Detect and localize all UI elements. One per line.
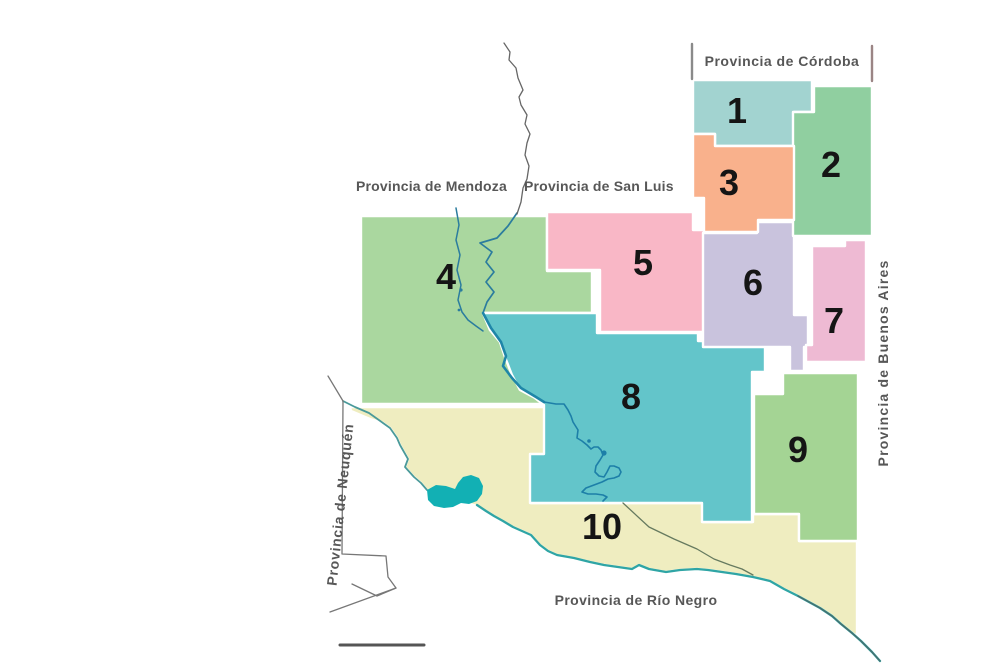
svg-text:6: 6	[743, 262, 763, 303]
svg-text:10: 10	[582, 506, 622, 547]
svg-text:5: 5	[633, 242, 653, 283]
svg-text:1: 1	[727, 90, 747, 131]
svg-text:Provincia de Mendoza: Provincia de Mendoza	[356, 178, 507, 194]
svg-text:Provincia de Río Negro: Provincia de Río Negro	[555, 592, 718, 608]
svg-text:4: 4	[436, 256, 456, 297]
svg-text:Provincia de Córdoba: Provincia de Córdoba	[705, 53, 860, 69]
svg-text:Provincia de Buenos Aires: Provincia de Buenos Aires	[875, 260, 891, 467]
svg-text:3: 3	[719, 162, 739, 203]
svg-text:9: 9	[788, 429, 808, 470]
svg-text:Provincia de San Luis: Provincia de San Luis	[524, 178, 674, 194]
svg-text:2: 2	[821, 144, 841, 185]
svg-text:7: 7	[824, 300, 844, 341]
svg-text:8: 8	[621, 376, 641, 417]
